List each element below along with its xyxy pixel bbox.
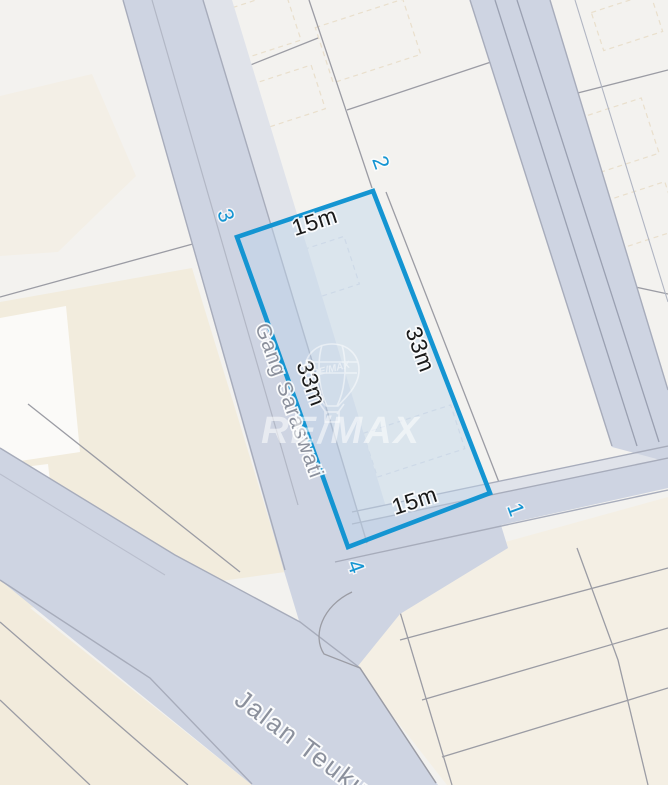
map-canvas[interactable]: Gang Saraswati Jalan Teuku 3 2 1 4 15m 3…	[0, 0, 668, 785]
remax-watermark-text: RE/MAX	[261, 410, 421, 452]
